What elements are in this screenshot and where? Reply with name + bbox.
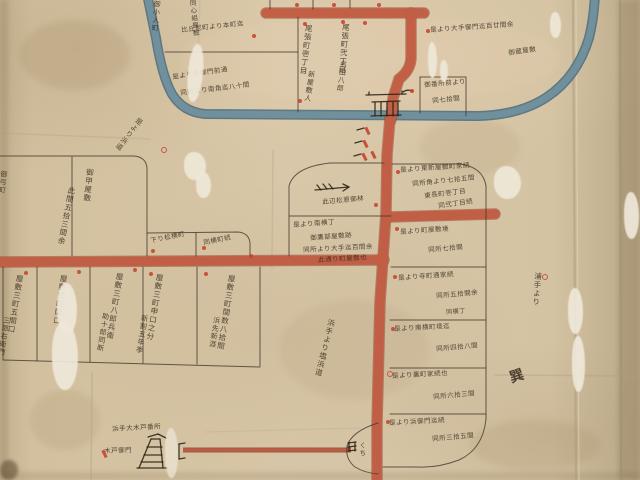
damage-patch — [572, 336, 585, 392]
damage-patch — [428, 42, 437, 78]
damage-patch — [52, 322, 78, 390]
damage-patch — [494, 166, 521, 199]
damage-layer — [0, 0, 640, 480]
damage-patch — [440, 60, 448, 82]
damage-patch — [185, 43, 206, 102]
antique-castle-town-map: 御小人町同心組屋敷比丘尼町より本町迄是より西御門前通同所より南角迄八十間尾張町壱… — [0, 0, 640, 480]
damage-patch — [165, 428, 178, 478]
damage-patch — [550, 12, 561, 38]
damage-patch — [624, 192, 639, 239]
damage-patch — [196, 172, 211, 198]
damage-patch — [568, 288, 583, 334]
